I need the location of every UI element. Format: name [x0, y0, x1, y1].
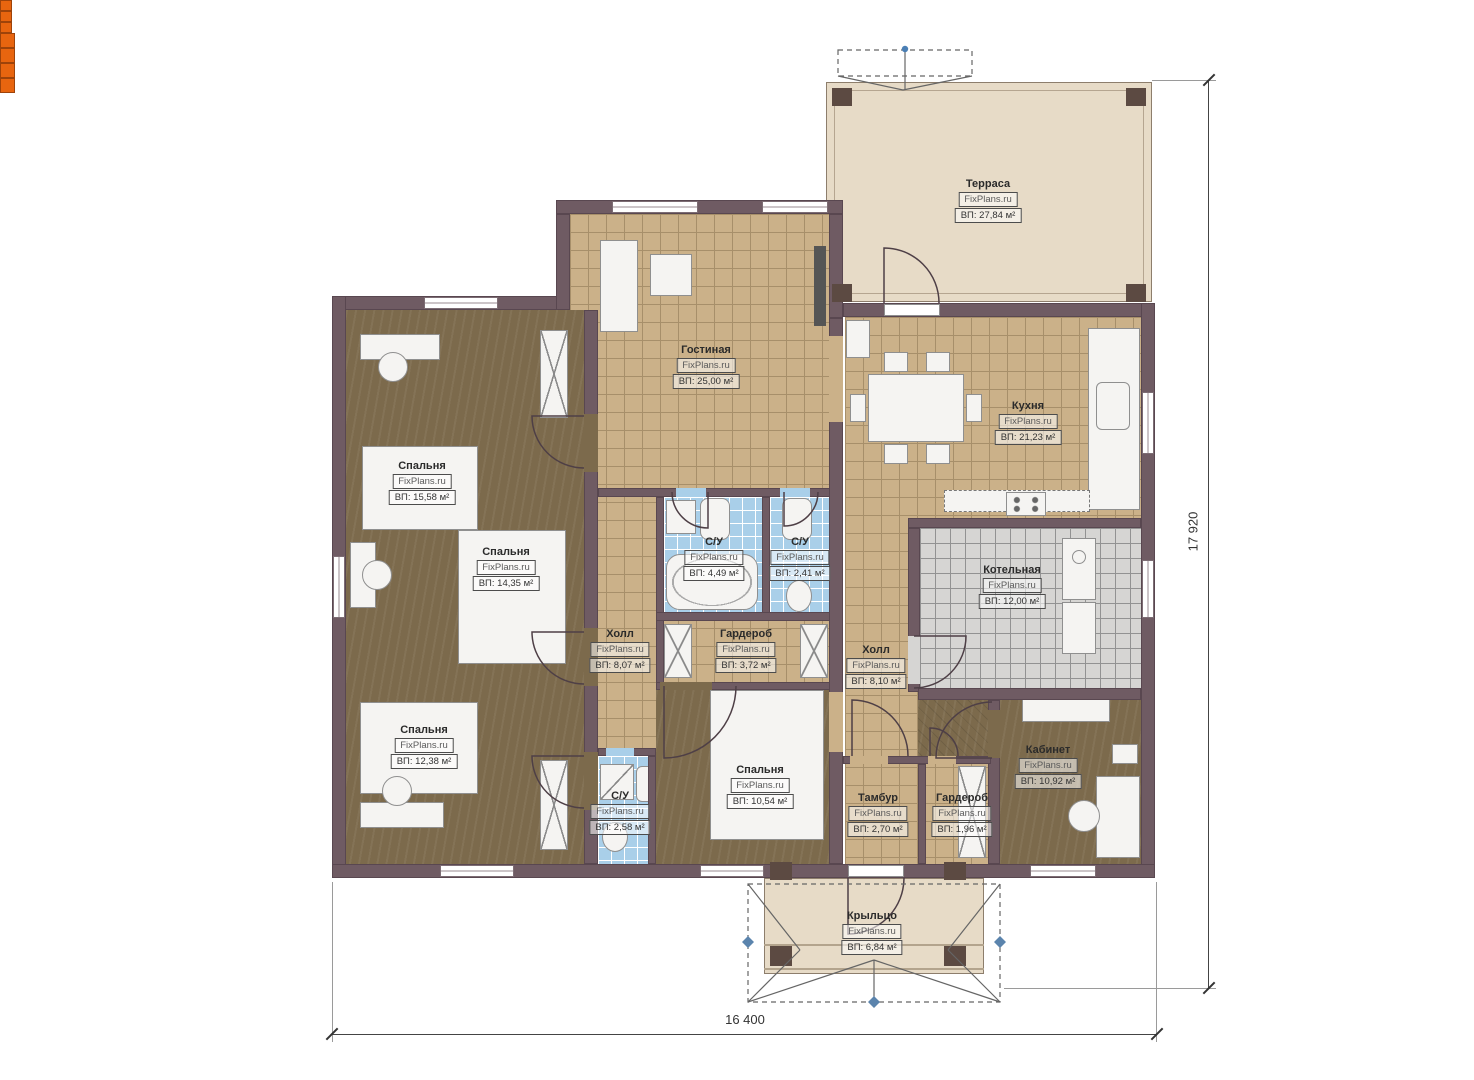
room-name: Крыльцо — [847, 910, 897, 923]
room-name: Кабинет — [1026, 744, 1071, 757]
room-name: Гардероб — [936, 792, 988, 805]
room-label-boiler: Котельная FixPlans.ru ВП: 12,00 м² — [979, 564, 1046, 609]
brand-watermark: FixPlans.ru — [846, 658, 906, 673]
room-area: ВП: 6,84 м² — [841, 940, 902, 955]
witness-line — [1156, 882, 1157, 1042]
brand-watermark: FixPlans.ru — [730, 778, 790, 793]
room-name: Холл — [606, 628, 634, 641]
room-name: Терраса — [966, 178, 1010, 191]
room-name: С/У — [705, 536, 723, 549]
boiler-room-floor — [920, 528, 1141, 692]
dining-chair-icon — [966, 394, 982, 422]
dining-chair-icon — [926, 352, 950, 372]
chair-icon — [378, 352, 408, 382]
door-opening — [988, 710, 1000, 758]
window — [1142, 392, 1154, 454]
window — [333, 556, 345, 618]
brand-watermark: FixPlans.ru — [684, 550, 744, 565]
room-label-terrace: Терраса FixPlans.ru ВП: 27,84 м² — [955, 178, 1022, 223]
brand-watermark: FixPlans.ru — [716, 642, 776, 657]
dimension-line-height — [1208, 80, 1209, 988]
door-opening — [850, 756, 888, 764]
room-label-bedroom3: Спальня FixPlans.ru ВП: 12,38 м² — [391, 724, 458, 769]
pillar — [1126, 88, 1146, 106]
dimension-line-width — [332, 1034, 1157, 1035]
porch-step — [764, 968, 984, 970]
boiler-icon — [1062, 538, 1096, 600]
room-label-vestibule: Тамбур FixPlans.ru ВП: 2,70 м² — [847, 792, 908, 837]
tv-icon — [814, 246, 826, 326]
door-opening — [829, 692, 843, 752]
room-area: ВП: 10,92 м² — [1015, 774, 1082, 789]
floor-plan-canvas: Терраса FixPlans.ru ВП: 27,84 м² Гостина… — [0, 0, 1474, 1080]
wall — [918, 764, 926, 864]
sink-icon — [786, 580, 812, 612]
brand-watermark: FixPlans.ru — [932, 806, 992, 821]
sofa-icon — [600, 240, 638, 332]
witness-line — [1004, 988, 1216, 989]
wall — [829, 214, 843, 318]
wardrobe-icon — [800, 624, 828, 678]
pillar — [770, 946, 792, 966]
pillar — [944, 946, 966, 966]
passage-floor — [918, 700, 988, 764]
chair-icon — [1068, 800, 1100, 832]
boiler-gauge-icon — [1072, 550, 1086, 564]
brand-watermark: FixPlans.ru — [842, 924, 902, 939]
printer-icon — [1112, 744, 1138, 764]
room-label-bathroom1: С/У FixPlans.ru ВП: 4,49 м² — [683, 536, 744, 581]
window — [440, 865, 514, 877]
room-label-bedroom1: Спальня FixPlans.ru ВП: 15,58 м² — [389, 460, 456, 505]
dimension-height-label: 17 920 — [1186, 467, 1201, 597]
coffee-table-icon — [650, 254, 692, 296]
room-name: Спальня — [736, 764, 784, 777]
sink-icon — [1096, 382, 1130, 430]
room-area: ВП: 27,84 м² — [955, 208, 1022, 223]
room-name: Спальня — [398, 460, 446, 473]
room-area: ВП: 4,49 м² — [683, 566, 744, 581]
room-name: Гардероб — [720, 628, 772, 641]
room-label-hall2: Холл FixPlans.ru ВП: 8,10 м² — [845, 644, 906, 689]
room-label-bedroom4: Спальня FixPlans.ru ВП: 10,54 м² — [727, 764, 794, 809]
window — [1030, 865, 1096, 877]
brand-watermark: FixPlans.ru — [958, 192, 1018, 207]
room-area: ВП: 10,54 м² — [727, 794, 794, 809]
room-label-hall1: Холл FixPlans.ru ВП: 8,07 м² — [589, 628, 650, 673]
brand-watermark: FixPlans.ru — [392, 474, 452, 489]
pillar — [770, 862, 792, 880]
chair-icon — [382, 776, 412, 806]
room-area: ВП: 14,35 м² — [473, 576, 540, 591]
towel-warmer-icon — [0, 0, 12, 11]
radiator-icon — [0, 33, 15, 48]
room-area: ВП: 25,00 м² — [673, 374, 740, 389]
room-label-bedroom2: Спальня FixPlans.ru ВП: 14,35 м² — [473, 546, 540, 591]
wall — [556, 214, 570, 310]
toilet-icon — [782, 498, 812, 540]
brand-watermark: FixPlans.ru — [998, 414, 1058, 429]
room-label-wardrobe1: Гардероб FixPlans.ru ВП: 3,72 м² — [715, 628, 776, 673]
radiator-icon — [0, 78, 15, 93]
room-label-bathroom2: С/У FixPlans.ru ВП: 2,41 м² — [769, 536, 830, 581]
pillar — [832, 88, 852, 106]
brand-watermark: FixPlans.ru — [1018, 758, 1078, 773]
room-name: С/У — [611, 790, 629, 803]
dimension-width-label: 16 400 — [660, 1012, 830, 1027]
brand-watermark: FixPlans.ru — [394, 738, 454, 753]
room-name: С/У — [791, 536, 809, 549]
room-area: ВП: 12,38 м² — [391, 754, 458, 769]
desk-icon — [360, 802, 444, 828]
room-label-bathroom3: С/У FixPlans.ru ВП: 2,58 м² — [589, 790, 650, 835]
front-door — [848, 865, 904, 877]
room-area: ВП: 2,41 м² — [769, 566, 830, 581]
room-area: ВП: 1,96 м² — [931, 822, 992, 837]
door-opening — [780, 488, 810, 497]
door-opening — [584, 414, 598, 472]
door-opening — [829, 336, 843, 422]
brand-watermark: FixPlans.ru — [476, 560, 536, 575]
room-label-wardrobe2: Гардероб FixPlans.ru ВП: 1,96 м² — [931, 792, 992, 837]
room-name: Спальня — [482, 546, 530, 559]
room-area: ВП: 8,07 м² — [589, 658, 650, 673]
window — [1142, 560, 1154, 618]
pillar — [944, 862, 966, 880]
dining-chair-icon — [926, 444, 950, 464]
window — [762, 201, 828, 213]
witness-line — [332, 882, 333, 1042]
brand-watermark: FixPlans.ru — [848, 806, 908, 821]
kitchen-cabinet-icon — [846, 320, 870, 358]
pillar — [1126, 284, 1146, 302]
door-opening — [908, 636, 920, 684]
brand-watermark: FixPlans.ru — [982, 578, 1042, 593]
room-area: ВП: 3,72 м² — [715, 658, 776, 673]
window — [612, 201, 698, 213]
wardrobe-icon — [540, 760, 568, 850]
room-name: Спальня — [400, 724, 448, 737]
room-label-office: Кабинет FixPlans.ru ВП: 10,92 м² — [1015, 744, 1082, 789]
wall — [918, 688, 1141, 700]
door-opening — [928, 756, 956, 764]
room-area: ВП: 2,70 м² — [847, 822, 908, 837]
chair-icon — [362, 560, 392, 590]
brand-watermark: FixPlans.ru — [590, 804, 650, 819]
room-name: Тамбур — [858, 792, 898, 805]
room-label-porch: Крыльцо FixPlans.ru ВП: 6,84 м² — [841, 910, 902, 955]
room-name: Холл — [862, 644, 890, 657]
room-area: ВП: 8,10 м² — [845, 674, 906, 689]
brand-watermark: FixPlans.ru — [590, 642, 650, 657]
towel-warmer-icon — [0, 22, 12, 33]
brand-watermark: FixPlans.ru — [676, 358, 736, 373]
door-opening — [606, 748, 634, 756]
room-name: Котельная — [983, 564, 1041, 577]
dining-chair-icon — [884, 352, 908, 372]
window — [424, 297, 498, 309]
room-area: ВП: 2,58 м² — [589, 820, 650, 835]
toilet-icon — [700, 498, 730, 540]
room-label-kitchen: Кухня FixPlans.ru ВП: 21,23 м² — [995, 400, 1062, 445]
wall — [908, 518, 1141, 528]
dining-chair-icon — [884, 444, 908, 464]
room-area: ВП: 21,23 м² — [995, 430, 1062, 445]
pillar — [832, 284, 852, 302]
radiator-icon — [0, 48, 15, 63]
dining-chair-icon — [850, 394, 866, 422]
terrace-door — [884, 304, 940, 316]
room-name: Кухня — [1012, 400, 1044, 413]
room-area: ВП: 15,58 м² — [389, 490, 456, 505]
room-name: Гостиная — [681, 344, 731, 357]
room-label-living: Гостиная FixPlans.ru ВП: 25,00 м² — [673, 344, 740, 389]
door-opening — [660, 682, 712, 690]
wall — [656, 497, 664, 690]
washing-machine-icon — [666, 500, 696, 534]
towel-warmer-icon — [0, 11, 12, 22]
door-opening — [676, 488, 706, 497]
wardrobe-icon — [540, 330, 568, 418]
stove-icon — [1006, 492, 1046, 516]
brand-watermark: FixPlans.ru — [770, 550, 830, 565]
wardrobe-icon — [664, 624, 692, 678]
window — [700, 865, 764, 877]
boiler-tank-icon — [1062, 602, 1096, 654]
dining-table-icon — [868, 374, 964, 442]
radiator-icon — [0, 63, 15, 78]
desk-icon — [1096, 776, 1140, 858]
wall — [656, 612, 830, 621]
room-area: ВП: 12,00 м² — [979, 594, 1046, 609]
